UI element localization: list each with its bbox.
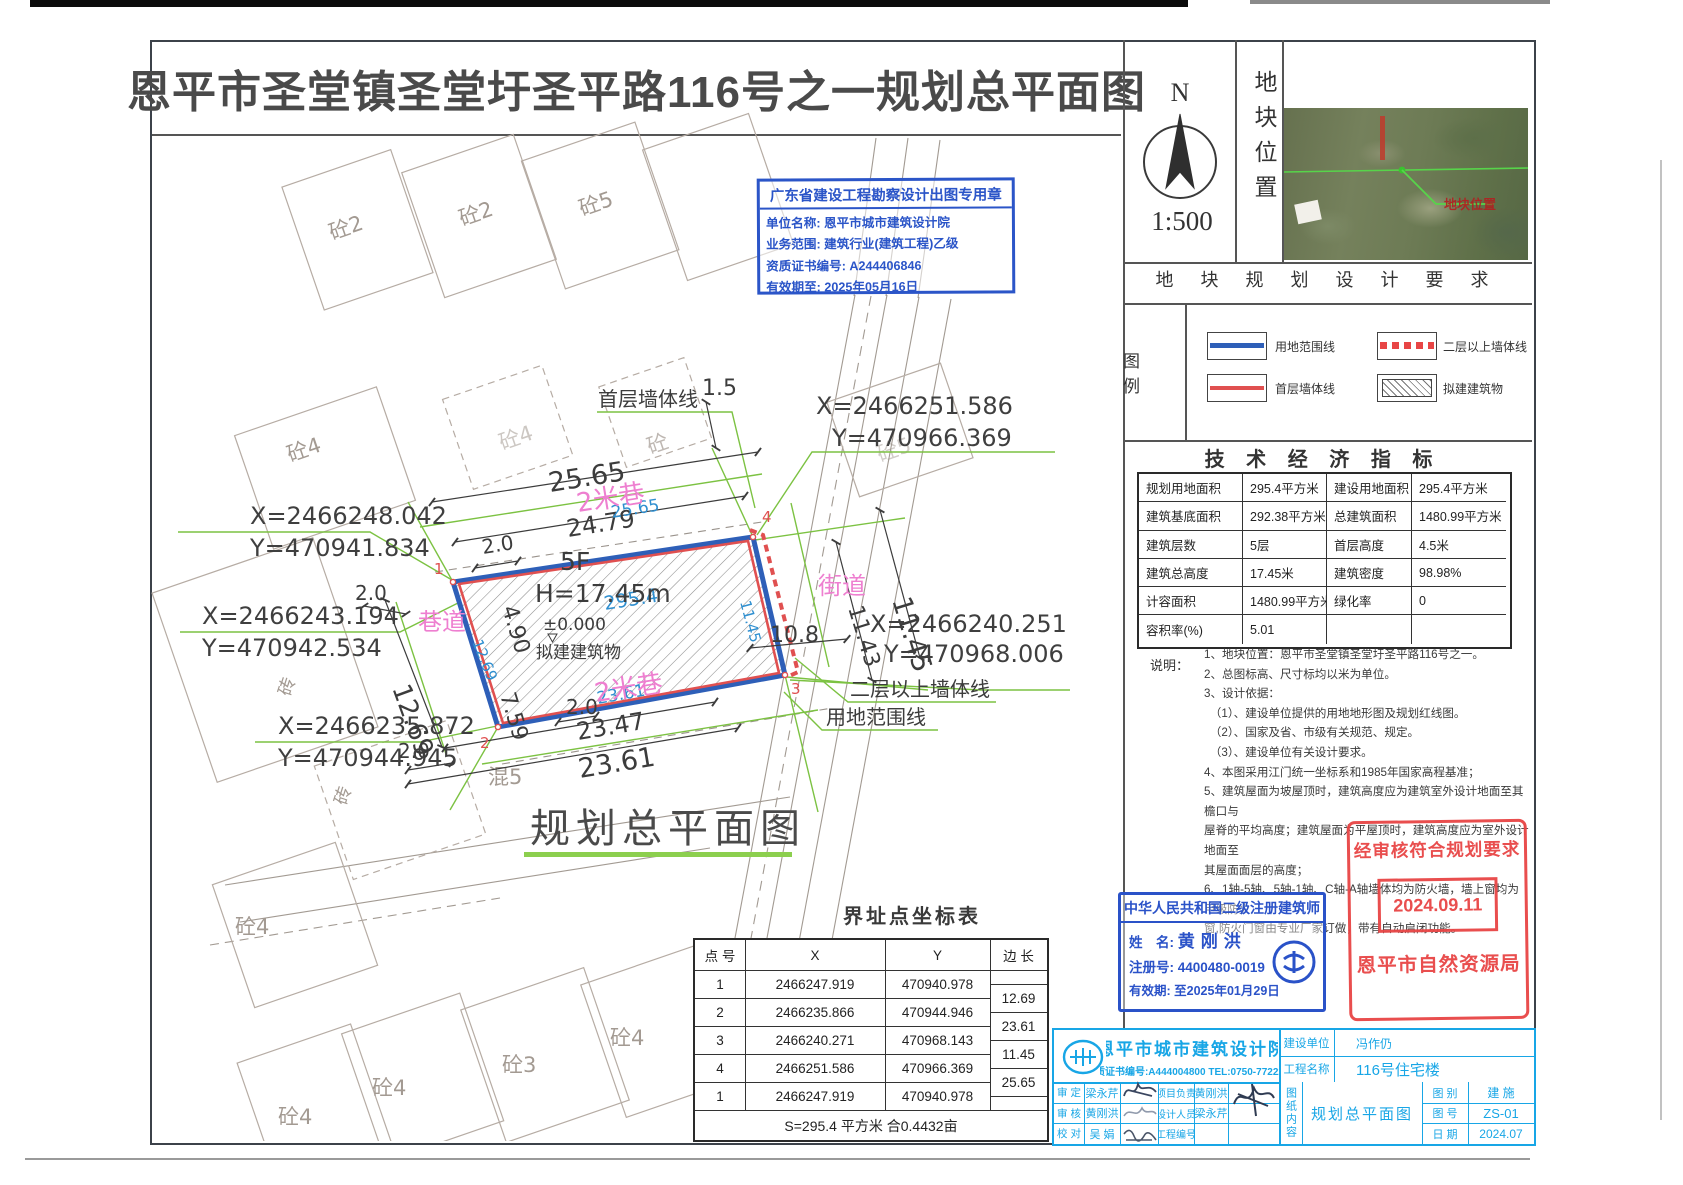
- architect-seal-icon: [1271, 939, 1317, 985]
- ind-value: 5层: [1243, 531, 1327, 559]
- indicators-title: 技 术 经 济 指 标: [1137, 443, 1508, 472]
- sheet-content: 规划总平面图: [1302, 1082, 1422, 1144]
- note-line: 5、建筑屋面为坡屋顶时，建筑高度应为建筑室外设计地面至其檐口与: [1204, 785, 1523, 818]
- svg-text:砼: 砼: [644, 429, 672, 459]
- ct-header-edge: 边 长: [990, 940, 1047, 971]
- approver-name: 梁永芹: [1084, 1082, 1120, 1103]
- ind-value: 0: [1412, 587, 1506, 615]
- scan-artifact-bottom: [25, 1158, 1530, 1160]
- ind-label: 建设用地面积: [1327, 474, 1412, 502]
- ct-x: 2466240.271: [745, 1026, 886, 1055]
- project-name: 116号住宅楼: [1334, 1056, 1534, 1082]
- institute-cert: 资质证书编号:A444004800 TEL:0750-7722234: [1100, 1060, 1280, 1080]
- legend-label: 图 例: [1123, 303, 1185, 440]
- notes-label: 说明：: [1150, 655, 1189, 674]
- ct-point: 2: [695, 998, 746, 1027]
- svg-text:2.0: 2.0: [480, 530, 515, 559]
- svg-text:砖: 砖: [275, 675, 301, 699]
- sheet-date: 2024.07: [1468, 1123, 1534, 1144]
- proofreader-label: 校 对: [1054, 1123, 1084, 1144]
- ct-x: 2466235.866: [745, 998, 886, 1027]
- ind-label: 首层高度: [1327, 531, 1412, 559]
- ind-label: 建筑总高度: [1139, 559, 1243, 587]
- legend-item-label: 拟建建筑物: [1443, 380, 1503, 397]
- designer-name: 梁永芹: [1194, 1103, 1228, 1123]
- architect-valid-date: 至2025年01月29日: [1174, 984, 1280, 998]
- signature-scribble: [1120, 1100, 1160, 1124]
- svg-text:3: 3: [791, 680, 801, 698]
- project-number: [1194, 1123, 1228, 1144]
- ind-value: 17.45米: [1243, 559, 1327, 587]
- ind-value: 295.4平方米: [1243, 474, 1327, 502]
- requirements-title: 地 块 规 划 设 计 要 求: [1123, 266, 1532, 292]
- ct-point: 3: [695, 1026, 746, 1055]
- sheet-number: ZS-01: [1468, 1103, 1534, 1123]
- svg-text:砼2: 砼2: [456, 197, 496, 231]
- svg-text:砼2: 砼2: [326, 211, 366, 245]
- scan-artifact-right: [1660, 160, 1662, 1120]
- ct-y: 470968.143: [885, 1026, 991, 1055]
- sheet-date-label: 日 期: [1422, 1123, 1468, 1144]
- ct-point: 4: [695, 1054, 746, 1083]
- project-lead-label: 项目负责: [1158, 1082, 1194, 1103]
- svg-text:砼4: 砼4: [372, 1076, 406, 1100]
- architect-reg-label: 注册号:: [1129, 960, 1174, 975]
- svg-text:砼4: 砼4: [284, 433, 324, 467]
- ct-header-x: X: [745, 940, 886, 971]
- svg-text:Y=470944.945: Y=470944.945: [277, 744, 458, 772]
- ind-label: 容积率(%): [1139, 615, 1243, 643]
- satellite-image: 地块位置: [1284, 108, 1528, 260]
- ct-point: 1: [695, 970, 746, 999]
- svg-text:砼4: 砼4: [235, 915, 269, 939]
- ct-x: 2466251.586: [745, 1054, 886, 1083]
- approval-stamp-text: 经审核符合规划要求: [1350, 836, 1524, 863]
- architect-valid-label: 有效期:: [1129, 984, 1171, 998]
- panel-divider: [1123, 40, 1125, 1028]
- ind-value: 292.38平方米: [1243, 502, 1327, 530]
- architect-name: 黄刚洪: [1178, 932, 1247, 951]
- svg-text:首层墙体线: 首层墙体线: [598, 387, 698, 411]
- panel-line: [1185, 303, 1187, 440]
- note-line: （1）、建设单位提供的用地地形图及规划红线图。: [1204, 707, 1466, 720]
- approval-stamp-date: 2024.09.11: [1377, 877, 1498, 933]
- note-line: 4、本图采用江门统一坐标系和1985年国家高程基准；: [1204, 766, 1480, 779]
- svg-text:拟建建筑物: 拟建建筑物: [536, 643, 621, 662]
- svg-text:二层以上墙体线: 二层以上墙体线: [850, 677, 990, 701]
- plan-title-underline: [524, 852, 792, 857]
- ind-label: 总建筑面积: [1327, 502, 1412, 530]
- ind-value: 5.01: [1243, 615, 1327, 643]
- legend-item-label: 二层以上墙体线: [1443, 338, 1527, 355]
- survey-stamp-line1: 单位名称: 恩平市城市建筑设计院: [760, 208, 1012, 231]
- reviewer-label: 审 核: [1054, 1103, 1084, 1123]
- ind-value: [1412, 615, 1506, 643]
- client-label: 建设单位: [1279, 1030, 1334, 1056]
- institute-name: 恩平市城市建筑设计院: [1106, 1034, 1278, 1060]
- plan-title: 规划总平面图: [530, 807, 806, 851]
- ind-label: 规划用地面积: [1139, 474, 1243, 502]
- svg-text:1: 1: [434, 560, 444, 578]
- project-lead-name: 黄刚洪: [1194, 1082, 1228, 1103]
- svg-text:街道: 街道: [818, 572, 866, 600]
- svg-text:砼4: 砼4: [496, 421, 536, 455]
- ct-header-y: Y: [885, 940, 991, 971]
- svg-text:X=2466235.872: X=2466235.872: [278, 712, 475, 740]
- svg-text:Y=470941.834: Y=470941.834: [249, 534, 430, 562]
- ind-label: 建筑密度: [1327, 559, 1412, 587]
- svg-text:Y=470968.006: Y=470968.006: [883, 640, 1064, 668]
- ct-edge: 11.45: [990, 1040, 1047, 1069]
- svg-text:23.61: 23.61: [576, 742, 657, 785]
- svg-text:砼5: 砼5: [576, 187, 616, 221]
- svg-text:混5: 混5: [488, 765, 522, 789]
- satellite-overlay-lines: [1284, 108, 1528, 260]
- legend-item-label: 首层墙体线: [1275, 380, 1335, 397]
- ct-header-point: 点 号: [695, 940, 746, 971]
- note-line: 其屋面面层的高度；: [1204, 864, 1308, 877]
- sheet-category: 建 施: [1468, 1082, 1534, 1103]
- svg-text:X=2466251.586: X=2466251.586: [816, 392, 1013, 420]
- sheet-content-label: 图纸内容: [1279, 1082, 1302, 1144]
- north-letter: N: [1158, 78, 1202, 108]
- architect-stamp-title: 中华人民共和国二级注册建筑师: [1121, 895, 1323, 923]
- ct-edge: 23.61: [990, 1012, 1047, 1041]
- legend-item-label: 用地范围线: [1275, 338, 1335, 355]
- legend-swatch-boundary: [1207, 332, 1267, 360]
- legend-swatch-proposed: [1377, 374, 1437, 402]
- panel-line: [1123, 440, 1532, 442]
- svg-text:用地范围线: 用地范围线: [826, 705, 926, 729]
- indicators-table: 规划用地面积 295.4平方米 建设用地面积 295.4平方米 建筑基底面积 2…: [1137, 472, 1512, 649]
- survey-stamp-line2: 业务范围: 建筑行业(建筑工程)乙级: [760, 230, 1012, 253]
- ct-y: 470944.946: [885, 998, 991, 1027]
- svg-text:Y=470942.534: Y=470942.534: [201, 634, 382, 662]
- sheet-category-label: 图 别: [1422, 1082, 1468, 1103]
- reviewer-name: 黄刚洪: [1084, 1103, 1120, 1123]
- svg-text:砼4: 砼4: [610, 1026, 644, 1050]
- svg-text:巷道: 巷道: [418, 608, 466, 636]
- ind-value: 1480.99平方米: [1243, 587, 1327, 615]
- ct-x: 2466247.919: [745, 970, 886, 999]
- ind-label: 绿化率: [1327, 587, 1412, 615]
- client-name: 冯作仍: [1334, 1030, 1534, 1056]
- architect-reg-number: 4400480-0019: [1178, 960, 1265, 975]
- institute-logo: [1062, 1038, 1104, 1076]
- approval-stamp: 经审核符合规划要求 2024.09.11 恩平市自然资源局: [1347, 819, 1530, 1021]
- ct-x: 2466247.919: [745, 1082, 886, 1111]
- ind-value: 98.98%: [1412, 559, 1506, 587]
- designer-label: 设计人员: [1158, 1103, 1194, 1123]
- legend-swatch-first-wall: [1207, 374, 1267, 402]
- ct-edge: 12.69: [990, 984, 1047, 1013]
- title-block: 恩平市城市建筑设计院 资质证书编号:A444004800 TEL:0750-77…: [1052, 1028, 1536, 1146]
- svg-text:4: 4: [762, 508, 772, 526]
- note-line: 3、设计依据：: [1204, 687, 1280, 700]
- signature-scribble: [1228, 1080, 1278, 1120]
- ind-value: 295.4平方米: [1412, 474, 1506, 502]
- ct-edge: 25.65: [990, 1068, 1047, 1097]
- note-line: 1、地块位置：恩平市圣堂镇圣堂圩圣平路116号之一。: [1204, 648, 1484, 661]
- approver-label: 审 定: [1054, 1082, 1084, 1103]
- survey-stamp-title: 广东省建设工程勘察设计出图专用章: [760, 180, 1012, 209]
- svg-text:H=17.45m: H=17.45m: [535, 579, 671, 608]
- svg-text:10.8: 10.8: [770, 623, 819, 648]
- ct-y: 470966.369: [885, 1054, 991, 1083]
- proofreader-name: 吴 娟: [1084, 1123, 1120, 1144]
- coordinate-table: 点 号 X Y 边 长 1 2466247.919 470940.978 2 2…: [693, 938, 1049, 1142]
- signature-scribble: [1118, 1122, 1162, 1146]
- ind-label: [1327, 615, 1412, 643]
- svg-text:Y=470966.369: Y=470966.369: [831, 424, 1012, 452]
- svg-text:砼4: 砼4: [278, 1105, 312, 1129]
- note-line: （2）、国家及省、市级有关规范、规定。: [1204, 726, 1419, 739]
- north-arrow-icon: [1139, 110, 1221, 206]
- scan-artifact-top: [30, 0, 1188, 7]
- project-number-label: 工程编号: [1158, 1123, 1194, 1144]
- note-line: （3）、建设单位有关设计要求。: [1204, 746, 1373, 759]
- coordinate-table-title: 界址点坐标表: [843, 900, 981, 929]
- sheet-number-label: 图 号: [1422, 1103, 1468, 1123]
- ind-label: 计容面积: [1139, 587, 1243, 615]
- survey-design-stamp: 广东省建设工程勘察设计出图专用章 单位名称: 恩平市城市建筑设计院 业务范围: …: [757, 177, 1016, 294]
- svg-text:5F: 5F: [560, 547, 590, 576]
- ct-y: 470940.978: [885, 970, 991, 999]
- svg-text:X=2466243.194: X=2466243.194: [202, 602, 399, 630]
- ind-label: 建筑层数: [1139, 531, 1243, 559]
- architect-name-label: 姓 名:: [1129, 935, 1174, 950]
- project-name-label: 工程名称: [1279, 1056, 1334, 1082]
- ct-y: 470940.978: [885, 1082, 991, 1111]
- svg-text:X=2466248.042: X=2466248.042: [250, 502, 447, 530]
- ct-edge-spacer: [990, 970, 1047, 985]
- svg-text:1.5: 1.5: [702, 376, 737, 401]
- svg-text:2: 2: [480, 734, 490, 752]
- ind-value: 4.5米: [1412, 531, 1506, 559]
- svg-text:±0.000: ±0.000: [543, 615, 606, 635]
- ct-footer-area: S=295.4 平方米 合0.4432亩: [695, 1110, 1047, 1141]
- svg-text:砼3: 砼3: [502, 1053, 536, 1077]
- panel-line: [1123, 262, 1532, 264]
- satellite-site-label: 地块位置: [1444, 194, 1496, 213]
- svg-text:砖: 砖: [331, 784, 357, 808]
- ct-point: 1: [695, 1082, 746, 1111]
- svg-text:X=2466240.251: X=2466240.251: [870, 610, 1067, 638]
- ind-value: 1480.99平方米: [1412, 502, 1506, 530]
- legend-swatch-upper-wall: [1377, 332, 1437, 360]
- survey-stamp-line4: 有效期至: 2025年05月16日: [760, 273, 1012, 296]
- scan-artifact-top2: [1250, 0, 1550, 4]
- ind-label: 建筑基底面积: [1139, 502, 1243, 530]
- scale-label: 1:500: [1142, 206, 1222, 237]
- approval-stamp-org: 恩平市自然资源局: [1351, 947, 1525, 978]
- architect-stamp: 中华人民共和国二级注册建筑师 姓 名: 黄刚洪 注册号: 4400480-001…: [1118, 892, 1326, 1012]
- location-label: 地块位置: [1237, 70, 1281, 210]
- note-line: 2、总图标高、尺寸标均以米为单位。: [1204, 668, 1396, 681]
- survey-stamp-line3: 资质证书编号: A244406846: [760, 251, 1012, 274]
